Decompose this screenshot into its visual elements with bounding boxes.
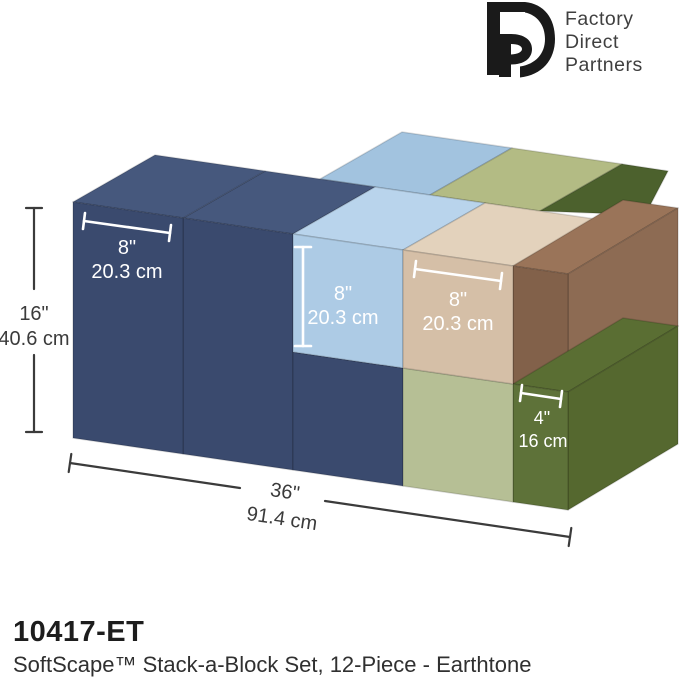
beige-width-inches-label: 8" (449, 289, 467, 311)
product-sku: 10417-ET (13, 616, 144, 648)
total-width-inches-label: 36" (269, 479, 301, 505)
total-width-cm-label: 91.4 cm (245, 503, 319, 535)
beige-width-cm-label: 20.3 cm (422, 313, 493, 335)
total-height-inches-label: 16" (19, 303, 48, 325)
olive-width-inches-label: 4" (534, 408, 550, 428)
navy-width-inches-label: 8" (118, 237, 136, 259)
blue-height-cm-label: 20.3 cm (307, 307, 378, 329)
brand-line-3: Partners (565, 54, 643, 76)
logo-f-top-arm (487, 2, 525, 12)
total-width-tick-left (69, 454, 72, 472)
navy-width-cm-label: 20.3 cm (91, 261, 162, 283)
navy-cube-front-face (293, 352, 403, 486)
navy-slab-2-front-face (183, 218, 293, 470)
blue-height-inches-label: 8" (334, 283, 352, 305)
fdp-logo-icon (487, 2, 555, 78)
total-width-line-left (70, 463, 240, 488)
product-diagram: Factory Direct Partners (0, 0, 679, 684)
product-image-canvas: Factory Direct Partners (0, 0, 679, 684)
logo-p-bowl (511, 34, 532, 65)
total-height-cm-label: 40.6 cm (0, 328, 70, 350)
total-width-line-right (325, 501, 570, 537)
product-title: SoftScape™ Stack-a-Block Set, 12-Piece -… (13, 652, 531, 677)
brand-line-1: Factory (565, 8, 634, 30)
brand-name: Factory Direct Partners (565, 8, 643, 76)
olive-width-cm-label: 16 cm (518, 431, 567, 451)
dimension-total-height: 16" 40.6 cm (0, 208, 70, 432)
total-width-tick-right (569, 528, 572, 546)
sage-cube-front-face (403, 368, 513, 502)
product-caption: 10417-ET SoftScape™ Stack-a-Block Set, 1… (13, 616, 531, 677)
logo-p-stem (499, 34, 511, 77)
brand-line-2: Direct (565, 31, 619, 53)
